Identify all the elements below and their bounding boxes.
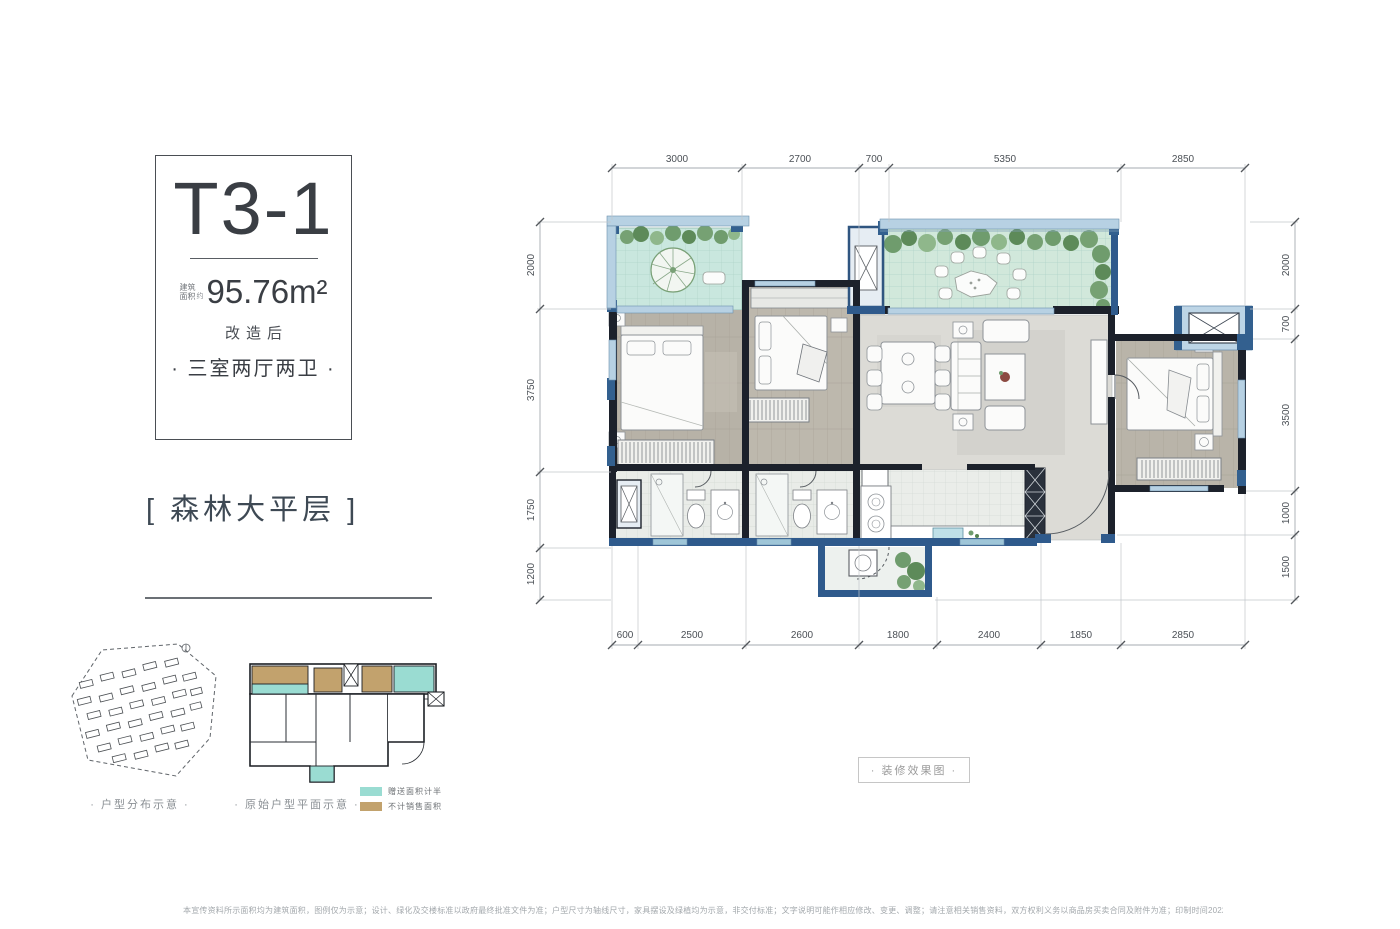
sink-icon — [711, 490, 739, 534]
dim-label: 3000 — [666, 154, 689, 165]
legend-row: 赠送面积计半 — [360, 786, 442, 797]
layout-label: · 三室两厅两卫 · — [171, 352, 335, 381]
dim-label: 2000 — [1281, 253, 1292, 276]
dim-label: 700 — [1281, 315, 1292, 332]
tagline: [ 森林大平层 ] — [146, 486, 358, 528]
shower-icon — [651, 474, 683, 536]
area-row: 建筑 面积 约 95.76m² — [179, 275, 327, 308]
legend-label: 不计销售面积 — [388, 801, 442, 812]
dining-table-icon — [867, 342, 950, 410]
site-plan-sketch — [58, 636, 226, 788]
armchair-icon — [985, 406, 1025, 430]
unit-name: T3-1 — [173, 170, 333, 248]
stove-icon — [861, 486, 891, 542]
bed-icon — [755, 316, 827, 390]
area-approx: 约 — [196, 291, 203, 301]
nightstand — [1195, 434, 1213, 450]
dim-label: 1850 — [1070, 630, 1093, 641]
area-prefix: 建筑 面积 — [179, 283, 195, 301]
shoe-closet-icon — [1025, 468, 1045, 540]
dim-label: 2850 — [1172, 630, 1195, 641]
dim-label: 5350 — [994, 154, 1017, 165]
coffee-table-icon — [985, 354, 1025, 400]
original-plan-thumbnail — [238, 650, 450, 792]
toilet-icon — [793, 490, 811, 528]
dim-label: 2400 — [978, 630, 1001, 641]
legend-swatch-teal — [360, 787, 382, 796]
side-table — [953, 414, 973, 430]
dim-label: 1000 — [1281, 501, 1292, 524]
toilet-icon — [687, 490, 705, 528]
nightstand — [831, 318, 847, 332]
dim-label: 600 — [617, 630, 634, 641]
dim-label: 3500 — [1281, 403, 1292, 426]
original-plan-label: · 原始户型平面示意 · — [222, 796, 372, 812]
decor-render-label: · 装修效果图 · — [858, 757, 970, 783]
shower-icon — [756, 474, 788, 536]
dim-label: 1800 — [887, 630, 910, 641]
dim-label: 3750 — [526, 378, 537, 401]
dim-label: 2500 — [681, 630, 704, 641]
fridge-icon — [862, 468, 888, 486]
card-divider — [190, 258, 318, 259]
tree-icon — [651, 248, 695, 292]
elevator-icon — [617, 480, 641, 528]
unit-info-card: T3-1 建筑 面积 约 95.76m² 改造后 · 三室两厅两卫 · — [155, 155, 352, 440]
dim-label: 2850 — [1172, 154, 1195, 165]
renovated-label: 改造后 — [219, 322, 288, 343]
wardrobe-icon — [618, 440, 714, 465]
bed-icon — [621, 326, 703, 430]
wardrobe-icon — [1137, 458, 1221, 480]
area-value: 95.76m² — [206, 275, 327, 308]
dim-label: 2600 — [791, 630, 814, 641]
dim-label: 2000 — [526, 253, 537, 276]
wardrobe-icon — [743, 398, 809, 422]
legend-teal-area — [252, 684, 308, 694]
closet-icon — [751, 288, 851, 308]
dim-label: 700 — [866, 154, 883, 165]
side-table — [953, 322, 973, 338]
building-footprints — [73, 652, 214, 769]
site-plan-label: · 户型分布示意 · — [70, 796, 210, 812]
left-divider-line — [145, 597, 432, 599]
legend: 赠送面积计半 不计销售面积 — [360, 786, 442, 812]
sink-icon — [817, 490, 847, 534]
washer-icon — [849, 550, 877, 576]
bed-icon — [1127, 352, 1222, 436]
dim-label: 1750 — [526, 498, 537, 521]
sofa-icon — [951, 342, 981, 410]
loveseat-icon — [983, 320, 1029, 342]
legend-label: 赠送面积计半 — [388, 786, 442, 797]
dim-label: 1200 — [526, 562, 537, 585]
tv-cabinet-icon — [1091, 340, 1107, 424]
floor-plan: 3000 2700 700 5350 2850 600 2500 2600 18… — [505, 130, 1315, 665]
dim-label: 1500 — [1281, 555, 1292, 578]
legend-row: 不计销售面积 — [360, 801, 442, 812]
dim-label: 2700 — [789, 154, 812, 165]
poster: T3-1 建筑 面积 约 95.76m² 改造后 · 三室两厅两卫 · [ 森林… — [0, 0, 1400, 929]
legend-swatch-tan — [360, 802, 382, 811]
disclaimer-text: 本宣传资料所示面积均为建筑面积，图例仅为示意；设计、绿化及交楼标准以政府最终批准… — [183, 905, 1223, 916]
